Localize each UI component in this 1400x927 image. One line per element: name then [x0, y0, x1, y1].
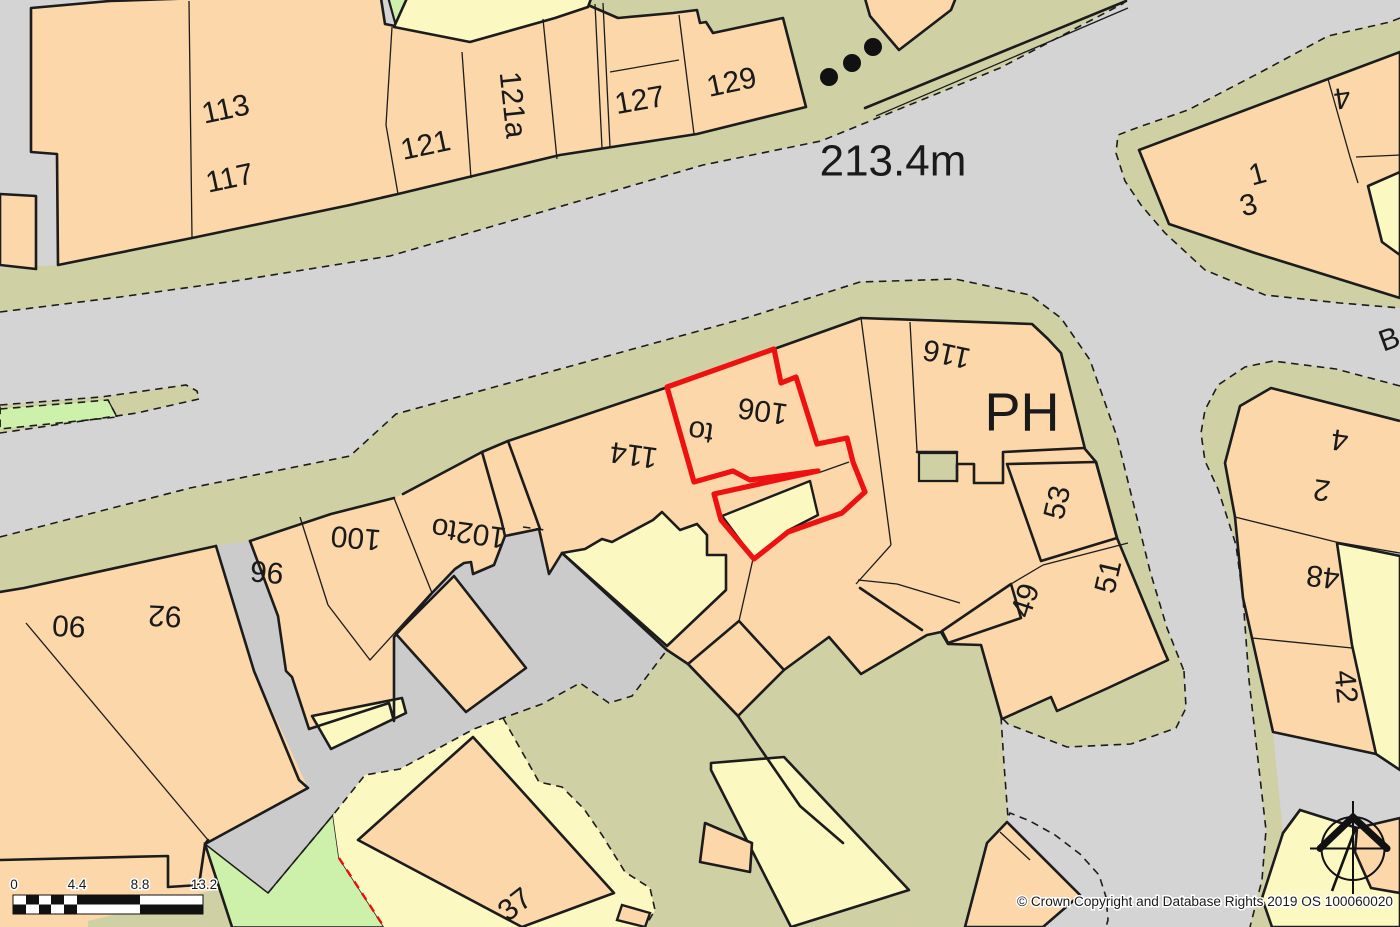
svg-text:0: 0	[10, 877, 18, 892]
svg-text:13.2: 13.2	[191, 877, 217, 892]
svg-text:42: 42	[1328, 669, 1364, 705]
svg-text:PH: PH	[984, 382, 1059, 442]
svg-text:114: 114	[608, 435, 660, 474]
svg-text:121a: 121a	[493, 70, 533, 140]
svg-text:106: 106	[736, 391, 790, 431]
svg-text:90: 90	[51, 608, 86, 643]
svg-text:96: 96	[249, 554, 285, 590]
svg-text:to: to	[686, 413, 715, 449]
svg-text:92: 92	[147, 598, 182, 633]
svg-text:© Crown Copyright and Database: © Crown Copyright and Database Rights 20…	[1017, 894, 1393, 909]
svg-text:100: 100	[329, 519, 382, 556]
svg-text:213.4m: 213.4m	[820, 137, 967, 186]
svg-text:48: 48	[1304, 558, 1341, 595]
svg-text:8.8: 8.8	[131, 877, 150, 892]
svg-text:4.4: 4.4	[68, 877, 87, 892]
